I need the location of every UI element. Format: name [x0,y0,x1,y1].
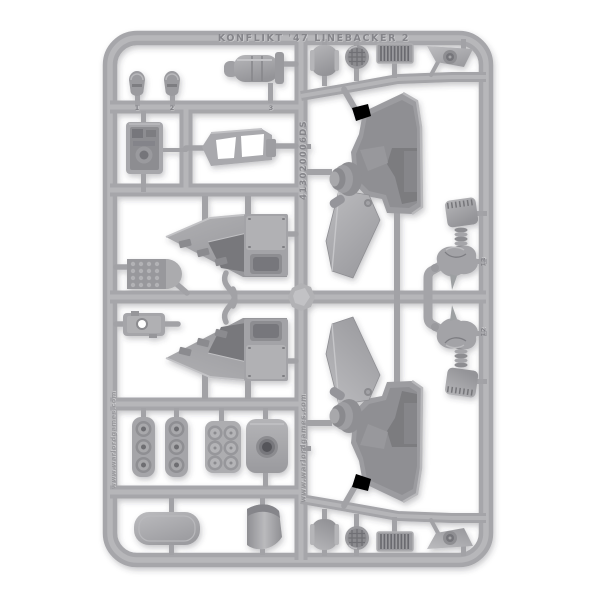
stem [268,83,273,103]
end-flange [275,52,284,84]
step-notch [404,151,417,192]
vision-slit [132,84,142,87]
product-photo: KONFLIKT '47 LINEBACKER 2 413020006DS ww… [0,0,600,600]
part-number-13: 13 [480,257,488,266]
stem [219,408,224,422]
truss-cutout [241,134,264,157]
stem [260,549,265,555]
side-flange [335,50,340,71]
vision-slit [167,84,177,87]
through-hole [138,320,146,328]
nub [431,264,439,272]
stem [174,408,179,418]
stem [245,196,251,217]
truss-cutout [216,137,236,159]
part-number-2: 2 [170,104,175,112]
sprue-code-text: 413020006DS [299,120,309,200]
part-number-12: 12 [480,327,488,336]
stem [141,408,146,418]
stem [141,172,146,192]
grille-slats [381,46,408,61]
sprue-title-text: KONFLIKT '47 LINEBACKER 2 [218,33,410,44]
part-number-1: 1 [135,104,140,112]
sprue-photo-canvas: KONFLIKT '47 LINEBACKER 2 413020006DS ww… [0,0,600,600]
stem [263,408,268,420]
pad-links [169,421,185,473]
sprue-website-text-left: www.warlordgames.com [110,391,118,489]
muffler-box [444,197,478,228]
plate-recess [253,257,279,271]
stem [461,39,466,49]
end-bracket [266,139,276,157]
stem [263,471,268,487]
side-flange [310,50,315,71]
armour-plate [246,216,286,250]
stem [354,68,359,81]
stem [202,196,208,222]
part-number-3: 3 [269,104,274,112]
stem [169,498,174,513]
stem [169,544,174,555]
pad-links [136,421,152,473]
stem [394,212,400,298]
mount-hole [262,442,272,452]
sprue-website-text-center: www.warlordgames.com [300,394,308,503]
